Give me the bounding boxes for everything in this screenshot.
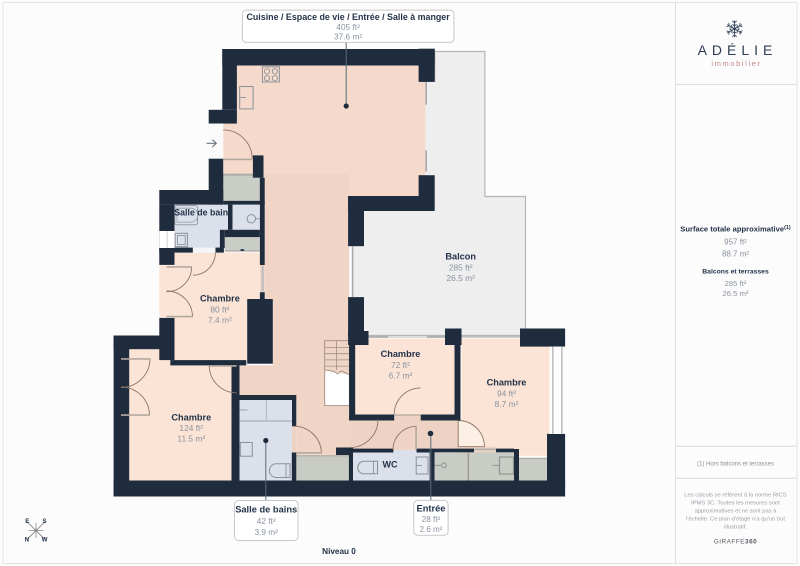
svg-text:957 ft²: 957 ft²: [724, 238, 747, 247]
svg-text:11.5 m²: 11.5 m²: [177, 434, 205, 444]
svg-text:2.6 m²: 2.6 m²: [420, 525, 443, 534]
svg-text:S: S: [42, 518, 46, 525]
svg-text:W: W: [42, 536, 48, 543]
svg-text:immobilier: immobilier: [711, 59, 761, 68]
svg-text:8.7 m²: 8.7 m²: [495, 399, 519, 409]
svg-text:Niveau 0: Niveau 0: [322, 547, 356, 556]
svg-text:Chambre: Chambre: [200, 294, 240, 304]
svg-text:88.7 m²: 88.7 m²: [722, 250, 749, 259]
svg-text:Les calculs se réfèrent à la n: Les calculs se réfèrent à la norme RICS: [684, 492, 787, 498]
svg-text:Chambre: Chambre: [171, 412, 211, 422]
svg-text:Cuisine / Espace de vie / Entr: Cuisine / Espace de vie / Entrée / Salle…: [246, 12, 450, 22]
svg-text:42 ft²: 42 ft²: [257, 516, 276, 526]
svg-text:37.6 m²: 37.6 m²: [334, 32, 362, 42]
svg-text:approximatives et ne sont pas: approximatives et ne sont pas à: [695, 508, 778, 514]
svg-text:72 ft²: 72 ft²: [391, 360, 410, 370]
svg-text:(1) Hors balcons et terrasses: (1) Hors balcons et terrasses: [697, 462, 774, 468]
svg-text:Balcon: Balcon: [445, 252, 476, 262]
svg-text:26.5 m²: 26.5 m²: [446, 273, 475, 283]
svg-text:28 ft²: 28 ft²: [422, 515, 441, 524]
svg-text:Balcons et terrasses: Balcons et terrasses: [702, 269, 769, 276]
svg-text:6.7 m²: 6.7 m²: [389, 370, 413, 380]
svg-text:26.5 m²: 26.5 m²: [722, 289, 749, 298]
svg-text:124 ft²: 124 ft²: [179, 423, 203, 433]
svg-text:Salle de bains: Salle de bains: [235, 505, 297, 515]
svg-text:80 ft²: 80 ft²: [210, 304, 229, 314]
svg-text:IPMS 3C. Toutes les mesures so: IPMS 3C. Toutes les mesures sont: [691, 500, 780, 506]
svg-text:Surface totale approximative(1: Surface totale approximative(1): [680, 224, 791, 233]
svg-text:285 ft²: 285 ft²: [725, 279, 747, 288]
svg-text:E: E: [25, 518, 29, 525]
svg-text:l'échelle. Ce plan d'étage n'a: l'échelle. Ce plan d'étage n'a qu'un but: [686, 516, 785, 522]
svg-text:Salle de bains: Salle de bains: [174, 207, 233, 217]
svg-text:WC: WC: [383, 460, 398, 470]
svg-text:Chambre: Chambre: [487, 377, 527, 387]
svg-text:Chambre: Chambre: [381, 349, 421, 359]
svg-text:94 ft²: 94 ft²: [497, 388, 516, 398]
svg-text:GIRAFFE360: GIRAFFE360: [714, 539, 757, 546]
svg-text:285 ft²: 285 ft²: [449, 262, 473, 272]
svg-text:3.9 m²: 3.9 m²: [254, 527, 278, 537]
svg-text:illustratif.: illustratif.: [724, 525, 747, 531]
svg-text:N: N: [25, 536, 29, 543]
svg-text:Entrée: Entrée: [417, 504, 446, 514]
svg-text:7.4 m²: 7.4 m²: [208, 315, 232, 325]
svg-text:ADÉLIE: ADÉLIE: [698, 42, 778, 58]
